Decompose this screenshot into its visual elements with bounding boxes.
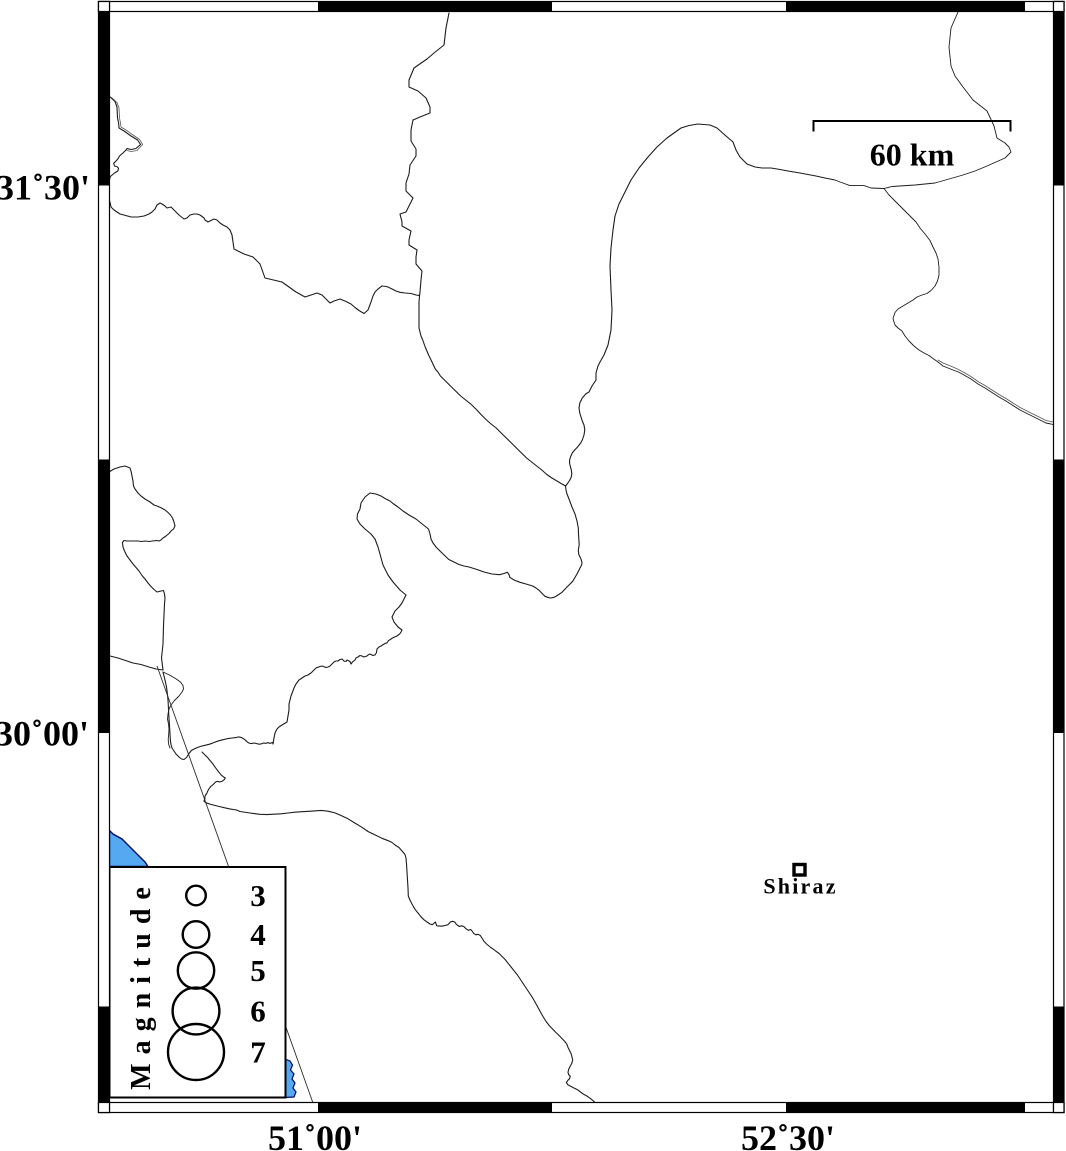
svg-text:52˚30': 52˚30' bbox=[741, 1118, 835, 1151]
svg-text:60 km: 60 km bbox=[870, 137, 955, 173]
svg-text:Magnitude: Magnitude bbox=[126, 878, 157, 1090]
svg-text:5: 5 bbox=[250, 953, 266, 988]
svg-text:6: 6 bbox=[250, 994, 266, 1029]
svg-text:30˚00': 30˚00' bbox=[0, 714, 89, 754]
svg-text:4: 4 bbox=[250, 917, 266, 952]
svg-text:51˚00': 51˚00' bbox=[268, 1118, 362, 1151]
svg-text:Shiraz: Shiraz bbox=[763, 874, 837, 899]
svg-text:3: 3 bbox=[250, 878, 266, 913]
svg-text:31˚30': 31˚30' bbox=[0, 168, 90, 208]
svg-text:7: 7 bbox=[250, 1035, 266, 1070]
